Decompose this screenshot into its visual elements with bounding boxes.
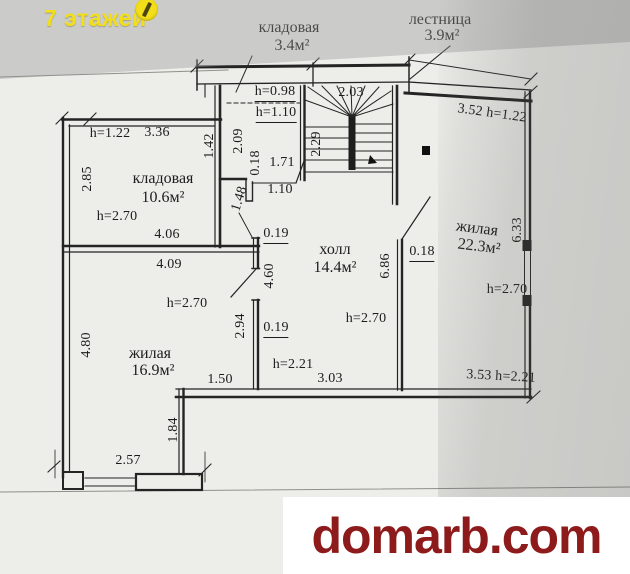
dimension-label: 3.36 xyxy=(144,125,169,141)
dimension-label: 4.80 xyxy=(79,332,95,357)
dimension-label: 1.42 xyxy=(202,133,218,158)
room-name-label: холл xyxy=(319,241,350,259)
dimension-label: 6.33 xyxy=(510,217,526,242)
floors-badge: 7 этажей xyxy=(44,5,147,32)
plan-labels: h=0.98h=1.102.032.293.52 h=1.22h=1.223.3… xyxy=(0,0,630,574)
dimension-label: 1.71 xyxy=(269,155,294,171)
room-name-label: кладовая xyxy=(133,170,194,188)
dimension-label: h=2.70 xyxy=(97,209,138,225)
dimension-label: h=1.22 xyxy=(90,126,131,142)
dimension-label: 1.84 xyxy=(166,417,182,442)
dimension-label: 0.19 xyxy=(263,320,288,338)
dimension-label: 1.10 xyxy=(267,182,292,198)
dimension-label: 6.86 xyxy=(378,253,394,278)
room-name-label: кладовая xyxy=(259,19,320,37)
dimension-label: 1.50 xyxy=(207,372,232,388)
dimension-label: 1.48 xyxy=(228,184,251,213)
dimension-label: 3.53 h=2.21 xyxy=(466,367,536,387)
dimension-label: 3.52 h=1.22 xyxy=(456,101,527,127)
watermark: domarb.com xyxy=(283,497,630,574)
dimension-label: 2.09 xyxy=(231,128,247,153)
floor-plan-photo: h=0.98h=1.102.032.293.52 h=1.22h=1.223.3… xyxy=(0,0,630,574)
dimension-label: 0.18 xyxy=(248,150,264,175)
room-area-label: 3.4м² xyxy=(275,37,310,55)
room-area-label: 3.9м² xyxy=(425,27,460,45)
dimension-label: 4.06 xyxy=(154,227,179,243)
dimension-label: 0.19 xyxy=(263,226,288,244)
dimension-label: 2.03 xyxy=(338,85,363,101)
dimension-label: 2.94 xyxy=(233,313,249,338)
watermark-text: domarb.com xyxy=(311,507,601,565)
dimension-label: 0.18 xyxy=(409,244,434,262)
dimension-label: 2.57 xyxy=(115,453,140,469)
dimension-label: 4.09 xyxy=(156,257,181,273)
dimension-label: h=1.10 xyxy=(256,105,297,123)
floors-badge-label: 7 этажей xyxy=(44,5,147,31)
dimension-label: h=2.70 xyxy=(487,282,528,298)
dimension-label: h=0.98 xyxy=(255,84,296,102)
dimension-label: 2.85 xyxy=(80,166,96,191)
room-name-label: жилая xyxy=(129,345,171,363)
dimension-label: 4.60 xyxy=(262,263,278,288)
dimension-label: h=2.21 xyxy=(273,357,314,373)
room-area-label: 10.6м² xyxy=(142,189,185,207)
dimension-label: h=2.70 xyxy=(346,311,387,327)
dimension-label: 2.29 xyxy=(309,131,325,156)
room-area-label: 14.4м² xyxy=(314,259,357,277)
dimension-label: h=2.70 xyxy=(167,296,208,312)
room-area-label: 22.3м² xyxy=(457,235,502,258)
room-area-label: 16.9м² xyxy=(132,362,175,380)
dimension-label: 3.03 xyxy=(317,371,342,387)
